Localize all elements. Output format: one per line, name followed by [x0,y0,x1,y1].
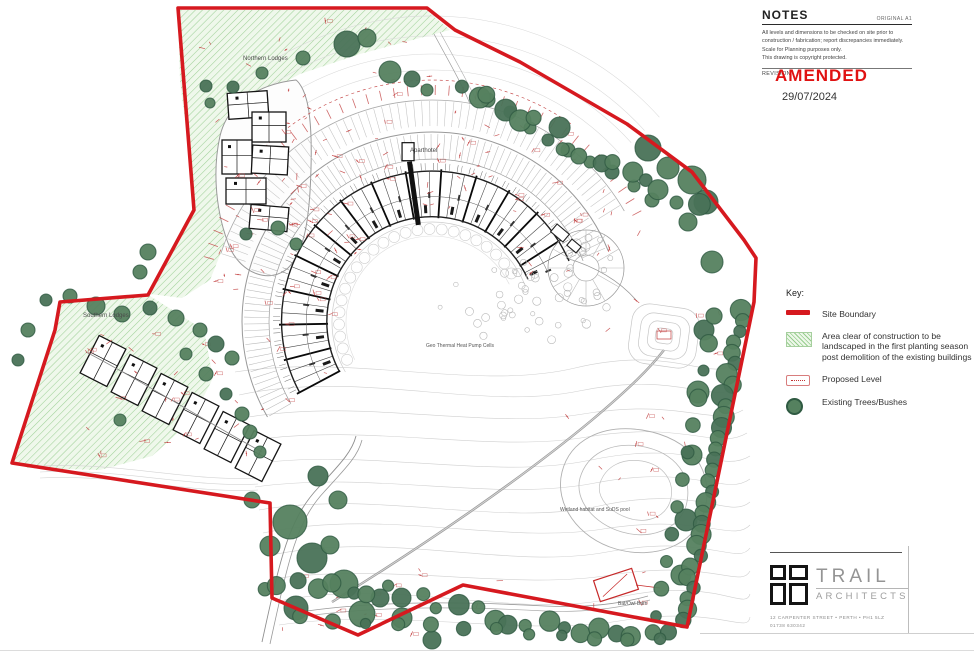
label-bat-owl-barn: Bat/Owl Barn [618,602,647,608]
legend-item-trees: Existing Trees/Bushes [786,397,972,415]
notes-line: All levels and dimensions to be checked … [762,29,912,37]
label-wetland: Wetland habitat and SuDS pool [560,508,630,514]
title-block-rule [770,552,902,553]
firm-address: 12 CARPENTER STREET • PERTH • PH1 5LZ [770,615,912,620]
legend-item-site-boundary: Site Boundary [786,309,972,320]
firm-name: TRAIL [816,567,909,586]
trail-architects-logo [770,563,810,605]
site-boundary-swatch [786,310,810,315]
label-northern-lodges: Northern Lodges [243,56,288,63]
firm-phone: 01738 630342 [770,623,912,628]
notes-line: construction / fabrication; report discr… [762,37,912,45]
legend-label: Area clear of construction to be landsca… [822,331,972,363]
amended-stamp-text: AMENDED [775,66,868,86]
legend-label: Proposed Level [822,374,882,385]
notes-body: All levels and dimensions to be checked … [762,29,912,63]
sheet-frame-vertical [908,546,909,633]
notes-line: This drawing is copyright protected. [762,54,912,62]
legend-title: Key: [786,288,972,298]
label-southern-lodges: Southern Lodges [83,313,129,320]
proposed-level-swatch [786,375,810,386]
notes-line: Scale for Planning purposes only. [762,46,912,54]
clear-area-swatch [786,332,812,347]
amended-date: 29/07/2024 [782,91,868,103]
sheet-bottom-edge [0,650,974,651]
title-block: TRAIL ARCHITECTS 12 CARPENTER STREET • P… [762,552,912,628]
firm-name-secondary: ARCHITECTS [816,588,909,602]
legend-item-clear-area: Area clear of construction to be landsca… [786,331,972,363]
notes-original-size: ORIGINAL A1 [877,16,912,22]
legend-label: Site Boundary [822,309,876,320]
legend-item-proposed-level: Proposed Level [786,374,972,386]
tree-swatch [786,398,803,415]
drawing-sheet: Northern Lodges Aparthotel Southern Lodg… [0,0,974,654]
label-aparthotel: Aparthotel [410,148,437,155]
notes-title: NOTES [762,8,808,22]
sheet-frame-horizontal [700,633,974,634]
legend-label: Existing Trees/Bushes [822,397,907,408]
amendment-stamp: AMENDED 29/07/2024 [775,66,868,103]
label-geo-thermal: Geo Thermal Heat Pump Cells [426,344,494,350]
legend: Key: Site Boundary Area clear of constru… [786,288,972,426]
